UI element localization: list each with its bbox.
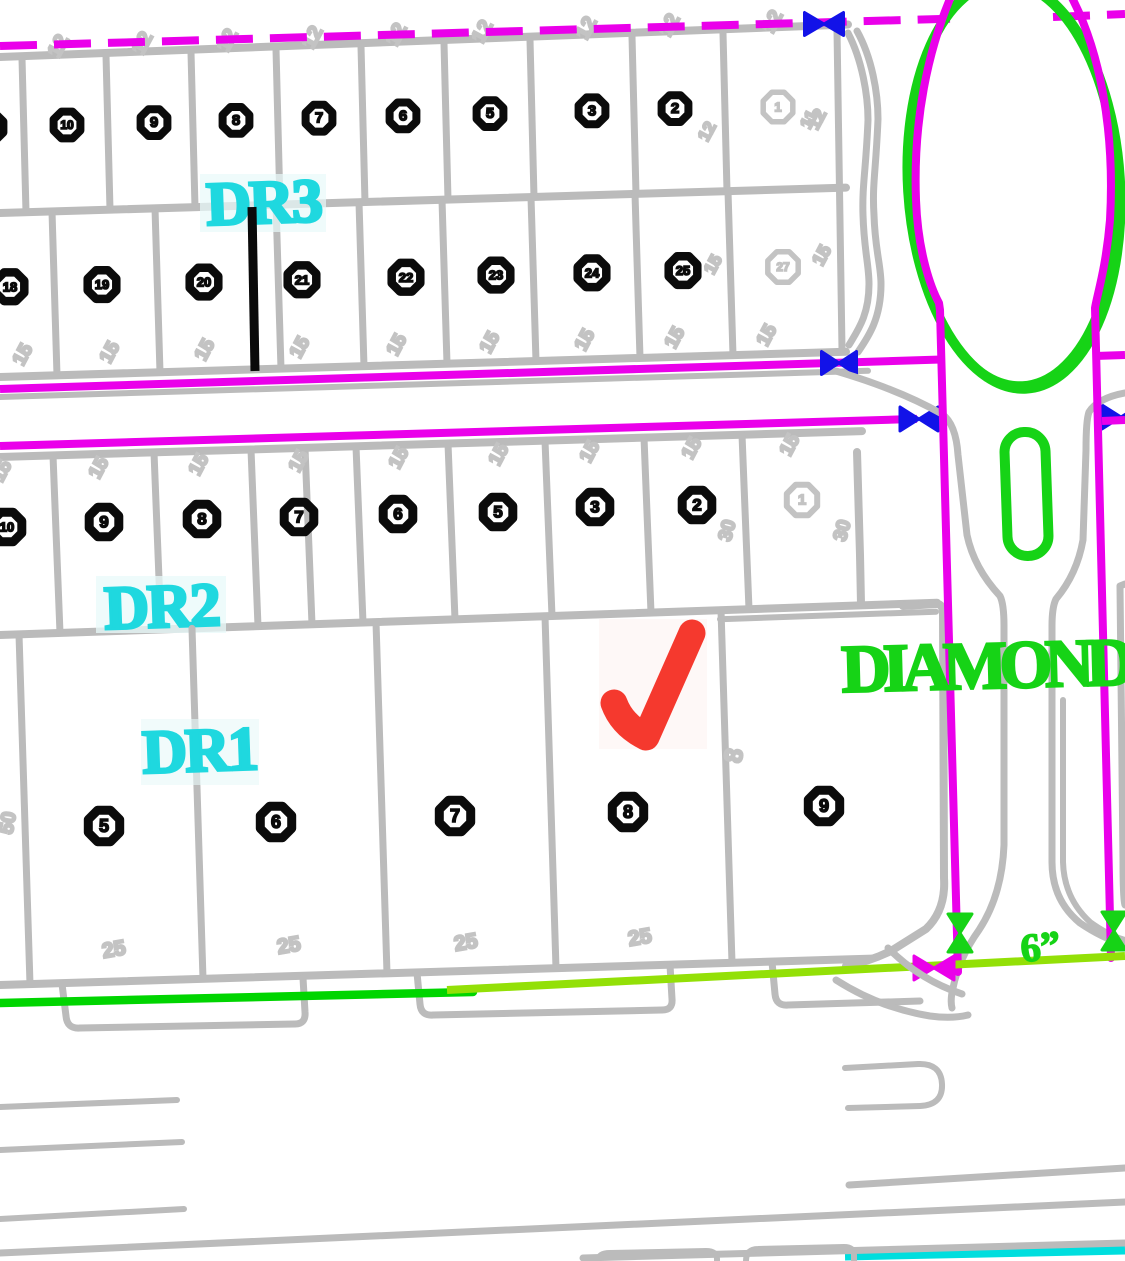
- svg-text:8: 8: [197, 510, 206, 529]
- svg-text:6: 6: [399, 107, 407, 124]
- svg-text:DIAMOND: DIAMOND: [840, 623, 1125, 707]
- svg-text:6: 6: [393, 505, 402, 524]
- svg-text:21: 21: [295, 272, 309, 287]
- svg-text:25: 25: [452, 929, 479, 956]
- svg-text:25: 25: [676, 263, 690, 278]
- svg-text:7: 7: [294, 508, 303, 527]
- svg-text:5: 5: [493, 503, 502, 522]
- svg-text:19: 19: [95, 277, 109, 292]
- svg-text:3: 3: [590, 498, 599, 517]
- svg-text:18: 18: [3, 279, 17, 294]
- svg-text:9: 9: [150, 114, 158, 131]
- svg-text:10: 10: [60, 118, 74, 132]
- svg-text:2: 2: [692, 496, 701, 515]
- svg-text:8: 8: [232, 112, 240, 129]
- svg-text:2: 2: [671, 100, 679, 117]
- svg-text:DR3: DR3: [205, 167, 322, 239]
- svg-text:DR2: DR2: [103, 571, 220, 643]
- svg-text:23: 23: [489, 268, 503, 283]
- svg-text:5: 5: [486, 105, 494, 122]
- svg-text:6”: 6”: [1018, 922, 1062, 971]
- svg-text:1: 1: [798, 492, 806, 509]
- svg-text:25: 25: [275, 932, 302, 959]
- svg-text:DR1: DR1: [141, 715, 258, 787]
- svg-text:7: 7: [315, 110, 323, 127]
- svg-text:8: 8: [623, 802, 633, 822]
- svg-text:22: 22: [399, 270, 413, 285]
- svg-text:25: 25: [100, 936, 127, 963]
- svg-text:24: 24: [585, 265, 600, 280]
- svg-text:9: 9: [819, 796, 829, 816]
- svg-text:25: 25: [626, 924, 653, 951]
- svg-text:9: 9: [99, 513, 108, 532]
- svg-text:10: 10: [0, 520, 14, 535]
- svg-text:27: 27: [776, 260, 790, 274]
- svg-text:5: 5: [99, 816, 109, 836]
- svg-text:20: 20: [197, 275, 211, 290]
- svg-text:6: 6: [271, 812, 281, 832]
- svg-text:7: 7: [450, 806, 460, 826]
- svg-text:3: 3: [588, 102, 596, 119]
- svg-text:1: 1: [774, 100, 781, 115]
